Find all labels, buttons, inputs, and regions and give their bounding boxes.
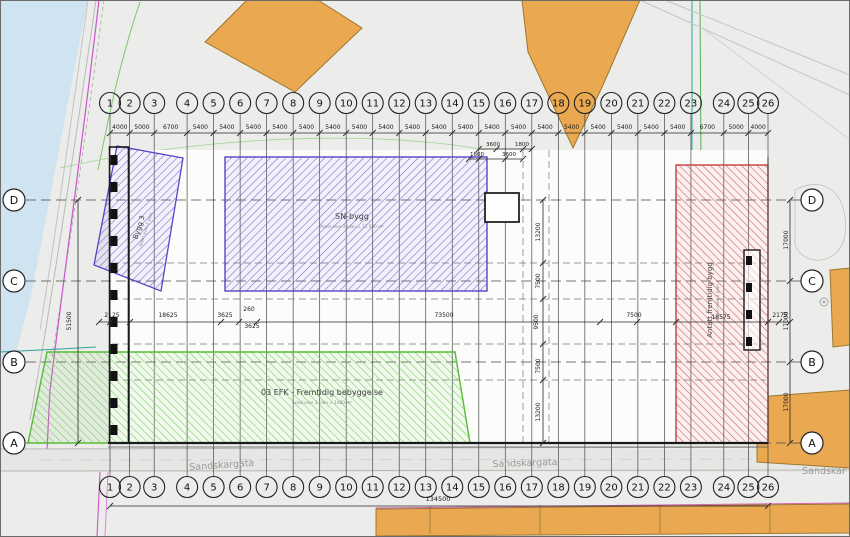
axis-bubble-letter: A — [808, 437, 816, 450]
axis-bubble-number: 21 — [632, 483, 645, 494]
axis-bubble-number: 14 — [446, 99, 459, 110]
manhole-symbol-dot — [823, 301, 826, 304]
building-right-bottom — [757, 390, 850, 468]
axis-bubble-letter: D — [10, 194, 18, 207]
axis-spacing-label: 5400 — [458, 124, 473, 131]
axis-spacing-label: 5400 — [325, 124, 340, 131]
axis-bubble-number: 15 — [472, 483, 485, 494]
axis-bubble-number: 1 — [107, 99, 113, 110]
dimension-label: 3625 — [217, 312, 232, 319]
axis-bubble-number: 14 — [446, 483, 459, 494]
axis-bubble-number: 20 — [605, 99, 618, 110]
dimension-label: 17000 — [783, 392, 790, 411]
axis-bubble-number: 26 — [762, 483, 775, 494]
axis-bubble-number: 15 — [472, 99, 485, 110]
axis-bubble-letter: C — [10, 275, 18, 288]
axis-bubble-number: 12 — [393, 483, 406, 494]
dimension-label: 7500 — [626, 312, 641, 319]
dimension-label: 13200 — [535, 222, 542, 241]
axis-bubble-number: 24 — [717, 483, 730, 494]
site-plan-page: 4000500067005400540054005400540054005400… — [0, 0, 850, 537]
axis-bubble-number: 20 — [605, 483, 618, 494]
axis-bubble-number: 22 — [658, 483, 671, 494]
site-plan-drawing: 4000500067005400540054005400540054005400… — [0, 0, 850, 537]
road-line-2 — [665, 0, 850, 75]
axis-spacing-label: 5400 — [617, 124, 632, 131]
dimension-label: 260 — [243, 306, 255, 313]
water-area — [0, 0, 88, 368]
axis-bubble-number: 6 — [237, 99, 243, 110]
axis-spacing-label: 5400 — [590, 124, 605, 131]
axis-bubble-number: 19 — [578, 483, 591, 494]
axis-spacing-label: 5400 — [352, 124, 367, 131]
area-sublabel-efk: Areal over 2 plan = 1480 m² — [292, 400, 352, 405]
dimension-label: 51500 — [66, 311, 73, 330]
axis-spacing-label: 5400 — [299, 124, 314, 131]
axis-spacing-label: 5400 — [670, 124, 685, 131]
axis-spacing-label: 5400 — [564, 124, 579, 131]
axis-spacing-label: 5400 — [537, 124, 552, 131]
axis-bubble-number: 7 — [263, 99, 269, 110]
axis-bubble-number: 4 — [184, 99, 190, 110]
axis-bubble-number: 23 — [685, 483, 698, 494]
axis-spacing-label: 5400 — [643, 124, 658, 131]
dimension-label: 2125 — [104, 312, 119, 319]
area-sublabel-sn-bygg: Areal over 2 plan = 11 500 m² — [320, 224, 384, 229]
axis-spacing-label: 5400 — [193, 124, 208, 131]
dimension-label: 73500 — [434, 312, 453, 319]
axis-spacing-label: 4000 — [112, 124, 127, 131]
axis-bubble-number: 18 — [552, 483, 565, 494]
axis-spacing-label: 5400 — [484, 124, 499, 131]
axis-spacing-label: 4000 — [751, 124, 766, 131]
dimension-label: 3625 — [244, 323, 259, 330]
axis-bubble-number: 4 — [184, 483, 190, 494]
axis-bubble-number: 22 — [658, 99, 671, 110]
axis-bubble-number: 10 — [340, 483, 353, 494]
axis-bubble-number: 17 — [525, 99, 538, 110]
axis-bubble-number: 25 — [742, 99, 755, 110]
axis-bubble-letter: A — [10, 437, 18, 450]
axis-spacing-label: 5000 — [134, 124, 149, 131]
dimension-label: 17000 — [783, 311, 790, 330]
axis-bubble-number: 25 — [742, 483, 755, 494]
axis-spacing-label: 5400 — [431, 124, 446, 131]
dimension-label: 18625 — [158, 312, 177, 319]
axis-spacing-label: 6700 — [700, 124, 715, 131]
axis-bubble-number: 10 — [340, 99, 353, 110]
axis-bubble-letter: C — [808, 275, 816, 288]
sn-bygg-notch — [485, 193, 519, 222]
axis-bubble-number: 8 — [290, 99, 296, 110]
axis-spacing-label: 5400 — [246, 124, 261, 131]
axis-bubble-number: 1 — [107, 483, 113, 494]
axis-spacing-label: 5000 — [728, 124, 743, 131]
axis-bubble-number: 16 — [499, 483, 512, 494]
dimension-label: 13200 — [535, 402, 542, 421]
area-label-fremtidig: Antatt fremtidig bygg — [706, 262, 714, 338]
dimension-label: 9500 — [533, 314, 540, 329]
axis-spacing-label: 5400 — [378, 124, 393, 131]
building-strip-bottom — [376, 504, 850, 536]
dimension-label: 17000 — [783, 230, 790, 249]
dimension-label: 3600 — [486, 142, 500, 148]
axis-bubble-number: 8 — [290, 483, 296, 494]
axis-bubble-number: 2 — [126, 99, 132, 110]
street-band — [0, 449, 850, 472]
axis-bubble-number: 5 — [210, 99, 216, 110]
axis-spacing-label: 5400 — [219, 124, 234, 131]
road-line-1 — [640, 0, 850, 95]
axis-bubble-number: 13 — [419, 483, 432, 494]
building-right-mid — [830, 268, 850, 347]
axis-bubble-number: 3 — [151, 99, 157, 110]
area-label-efk: 03 EFK - Fremtidig bebyggelse — [261, 388, 383, 397]
axis-bubble-number: 13 — [419, 99, 432, 110]
building-diamond-top — [205, 0, 362, 92]
axis-spacing-label: 5400 — [511, 124, 526, 131]
street-label-1: Sandskargata — [492, 457, 558, 470]
axis-bubble-number: 24 — [717, 99, 730, 110]
dimension-label: 7500 — [535, 358, 542, 373]
axis-bubble-number: 18 — [552, 99, 565, 110]
axis-bubble-number: 6 — [237, 483, 243, 494]
axis-bubble-number: 19 — [578, 99, 591, 110]
boundary-magenta-bottom-1 — [97, 472, 100, 537]
axis-bubble-number: 23 — [685, 99, 698, 110]
dimension-label: 7500 — [535, 273, 542, 288]
street-label-2: Sandskar — [802, 466, 846, 477]
axis-bubble-number: 9 — [316, 99, 322, 110]
axis-bubble-number: 3 — [151, 483, 157, 494]
dimension-label: 1800 — [470, 152, 484, 158]
axis-bubble-number: 11 — [366, 99, 379, 110]
efk-hatch-area — [28, 352, 470, 443]
area-label-sn-bygg: SN-bygg — [335, 212, 369, 221]
axis-bubble-letter: B — [808, 356, 816, 369]
dimension-label: 3600 — [502, 152, 516, 158]
axis-bubble-number: 5 — [210, 483, 216, 494]
axis-bubble-number: 16 — [499, 99, 512, 110]
axis-spacing-label: 5400 — [272, 124, 287, 131]
axis-bubble-letter: D — [808, 194, 816, 207]
axis-spacing-label: 6700 — [163, 124, 178, 131]
axis-bubble-number: 7 — [263, 483, 269, 494]
axis-bubble-number: 12 — [393, 99, 406, 110]
axis-bubble-number: 26 — [762, 99, 775, 110]
area-sublabel-fremtidig: Areal over 2 plan — [715, 284, 720, 320]
dimension-label: 1800 — [515, 142, 529, 148]
green-utility-line — [98, 2, 140, 170]
axis-bubble-number: 21 — [632, 99, 645, 110]
axis-bubble-number: 2 — [126, 483, 132, 494]
axis-spacing-label: 5400 — [405, 124, 420, 131]
green-line-right — [700, 0, 701, 167]
axis-bubble-number: 9 — [316, 483, 322, 494]
axis-bubble-letter: B — [10, 356, 18, 369]
axis-bubble-number: 11 — [366, 483, 379, 494]
axis-bubble-number: 17 — [525, 483, 538, 494]
